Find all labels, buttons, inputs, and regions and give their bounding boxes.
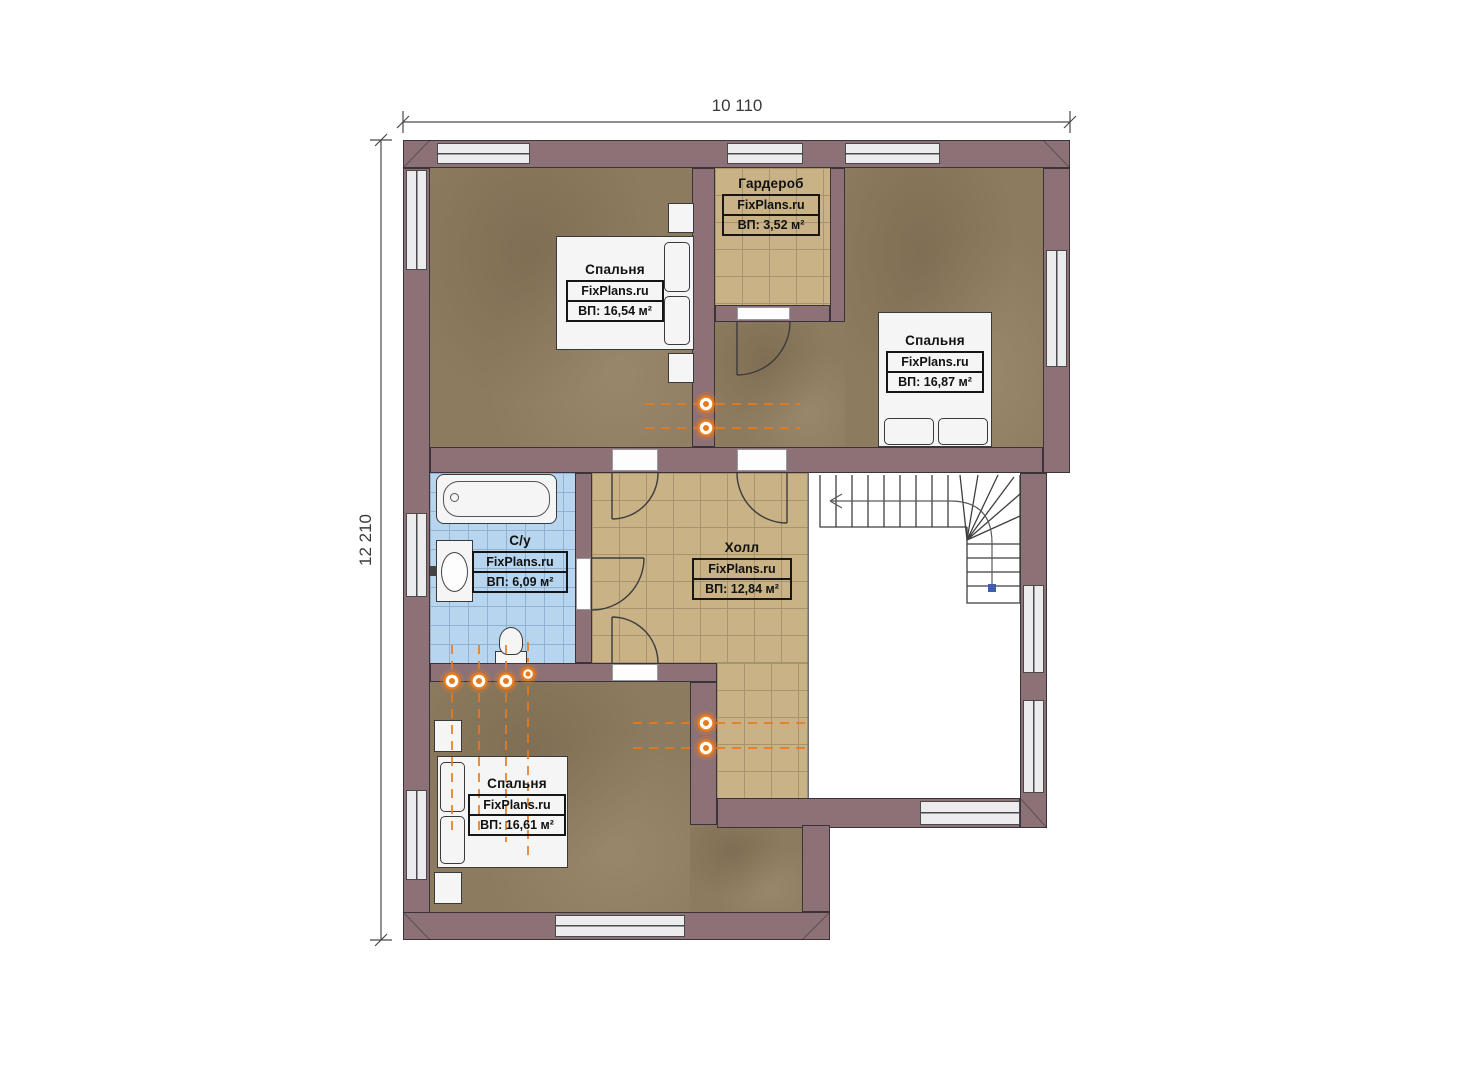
wall-bedroom-bottom-hall (690, 682, 717, 825)
window-right-mid-1 (1023, 585, 1044, 673)
floor-plan: 10 110 12 210 Спальня FixPlans.ru ВП: 16… (0, 0, 1473, 1080)
dimension-height-label: 12 210 (356, 514, 376, 566)
floor-hall-lower (717, 663, 808, 798)
window-right-mid-2 (1023, 700, 1044, 793)
brand-label: FixPlans.ru (694, 560, 790, 578)
area-label: ВП: 16,54 м² (568, 300, 662, 320)
nightstand (668, 203, 694, 233)
sink-faucet (430, 566, 437, 576)
room-name: Гардероб (722, 176, 820, 191)
room-info-box: FixPlans.ru ВП: 12,84 м² (692, 558, 792, 600)
window-left-2 (406, 513, 427, 597)
area-label: ВП: 16,87 м² (888, 371, 982, 391)
room-info-box: FixPlans.ru ВП: 16,54 м² (566, 280, 664, 322)
pillow (884, 418, 934, 445)
pillow (938, 418, 988, 445)
brand-label: FixPlans.ru (724, 196, 818, 214)
pillow (440, 762, 465, 812)
brand-label: FixPlans.ru (474, 553, 566, 571)
room-label-bedroom-top-right: Спальня FixPlans.ru ВП: 16,87 м² (886, 333, 984, 393)
window-left-3 (406, 790, 427, 880)
door-opening-bedroom-bottom (612, 664, 658, 681)
nightstand (434, 872, 462, 904)
window-bottom (555, 915, 685, 937)
wall-bathroom-bottom (430, 663, 717, 682)
floor-stairwell-void (808, 473, 1020, 798)
room-label-bedroom-bottom: Спальня FixPlans.ru ВП: 16,61 м² (468, 776, 566, 836)
room-label-bathroom: С/у FixPlans.ru ВП: 6,09 м² (472, 533, 568, 593)
room-info-box: FixPlans.ru ВП: 16,61 м² (468, 794, 566, 836)
area-label: ВП: 16,61 м² (470, 814, 564, 834)
room-info-box: FixPlans.ru ВП: 3,52 м² (722, 194, 820, 236)
window-right-upper (1046, 250, 1067, 367)
window-stairwell-bottom (920, 801, 1020, 825)
room-name: Спальня (566, 262, 664, 277)
room-label-wardrobe: Гардероб FixPlans.ru ВП: 3,52 м² (722, 176, 820, 236)
floor-wardrobe-passage (715, 322, 845, 447)
brand-label: FixPlans.ru (470, 796, 564, 814)
door-opening-bedroomTL (612, 449, 658, 471)
door-opening-bedroomTR (737, 449, 787, 471)
wall-bedroomTL-wardrobe (692, 168, 715, 447)
area-label: ВП: 12,84 м² (694, 578, 790, 598)
pillow (440, 816, 465, 864)
door-opening-bathroom (576, 558, 591, 610)
dimension-width-label: 10 110 (712, 96, 763, 116)
nightstand (668, 353, 694, 383)
bathtub-drain (450, 493, 459, 502)
floor-bedroom-bottom-ext (690, 825, 802, 912)
door-opening-wardrobe (737, 307, 790, 320)
room-info-box: FixPlans.ru ВП: 16,87 м² (886, 351, 984, 393)
area-label: ВП: 3,52 м² (724, 214, 818, 234)
wall-wardrobe-right (830, 168, 845, 322)
window-left-1 (406, 170, 427, 270)
brand-label: FixPlans.ru (568, 282, 662, 300)
pillow (664, 242, 690, 292)
brand-label: FixPlans.ru (888, 353, 982, 371)
area-label: ВП: 6,09 м² (474, 571, 566, 591)
room-name: Спальня (886, 333, 984, 348)
window-top-3 (845, 143, 940, 164)
room-name: С/у (472, 533, 568, 548)
toilet-bowl (499, 627, 523, 655)
wall-bedroom-bottom-right (802, 825, 830, 912)
room-label-bedroom-top-left: Спальня FixPlans.ru ВП: 16,54 м² (566, 262, 664, 322)
room-name: Холл (692, 540, 792, 555)
nightstand (434, 720, 462, 752)
room-name: Спальня (468, 776, 566, 791)
window-top-1 (437, 143, 530, 164)
pillow (664, 296, 690, 345)
room-info-box: FixPlans.ru ВП: 6,09 м² (472, 551, 568, 593)
window-top-2 (727, 143, 803, 164)
room-label-hall: Холл FixPlans.ru ВП: 12,84 м² (692, 540, 792, 600)
sink-bowl (441, 552, 468, 592)
bathtub-inner (443, 481, 550, 517)
